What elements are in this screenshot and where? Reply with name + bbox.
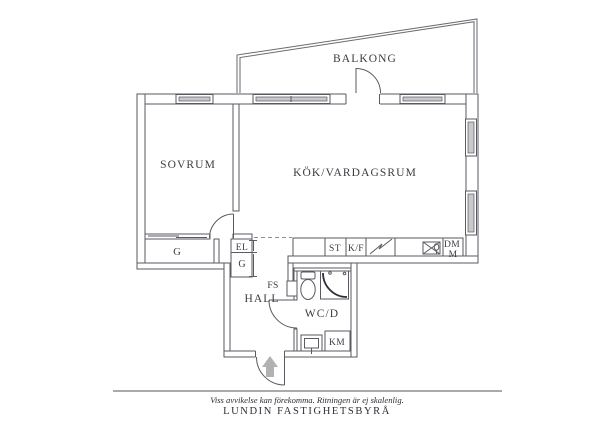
floorplan-page: BALKONG SOVRUM KÖK/VARDAGSRUM HALL WC/D … [0,0,615,435]
window-right-upper-icon [466,119,477,156]
bedroom-label: SOVRUM [160,159,216,171]
vent-shaft-box [287,281,297,296]
window-right-lower-icon [466,191,477,235]
balcony-door-icon [346,68,381,105]
wall-hall-left [224,263,230,357]
wall-lower-right [351,263,357,357]
micro-label: M [449,250,458,260]
shower-icon [321,271,349,299]
kitchen-counter [293,238,463,256]
window-kitchen-left-icon [253,95,330,104]
electrical-cabinet-label: EL [236,243,248,253]
kitchen-living-label: KÖK/VARDAGSRUM [293,165,417,179]
wall-left [137,94,145,269]
wardrobe-large-label: G [173,247,181,258]
wall-bedroom-partition [233,104,239,211]
wall-wc-left-lower [294,329,297,351]
cleaning-closet-label: ST [329,244,341,254]
wall-el-closet-top [233,234,252,239]
dishwasher-label: DM [444,240,460,250]
bathroom-label: WC/D [305,308,339,320]
fridge-freezer-label: K/F [348,244,364,254]
wall-hall-bottom [224,351,357,357]
wall-stub-wc [288,263,293,282]
hall-label: HALL [244,293,279,305]
footer: Viss avvikelse kan förekomma. Ritningen … [113,391,502,417]
window-kitchen-right-icon [400,95,445,104]
wall-closet-right [214,239,219,263]
footer-company: LUNDIN FASTIGHETSBYRÅ [223,405,391,417]
vent-shaft-label: FS [267,281,278,291]
wall-bottom-left [137,263,230,269]
toilet-icon [301,272,315,300]
bedroom-door-icon [210,214,234,238]
window-bedroom-icon [176,95,213,104]
floorplan-drawing: BALKONG SOVRUM KÖK/VARDAGSRUM HALL WC/D … [0,0,615,435]
washbasin-icon [301,335,322,354]
entrance-arrow-icon [262,356,278,377]
footer-disclaimer: Viss avvikelse kan förekomma. Ritningen … [210,395,404,405]
balcony-label: BALKONG [333,53,397,65]
wardrobe-small-label: G [238,259,245,270]
washing-machine-label: KM [329,338,345,348]
